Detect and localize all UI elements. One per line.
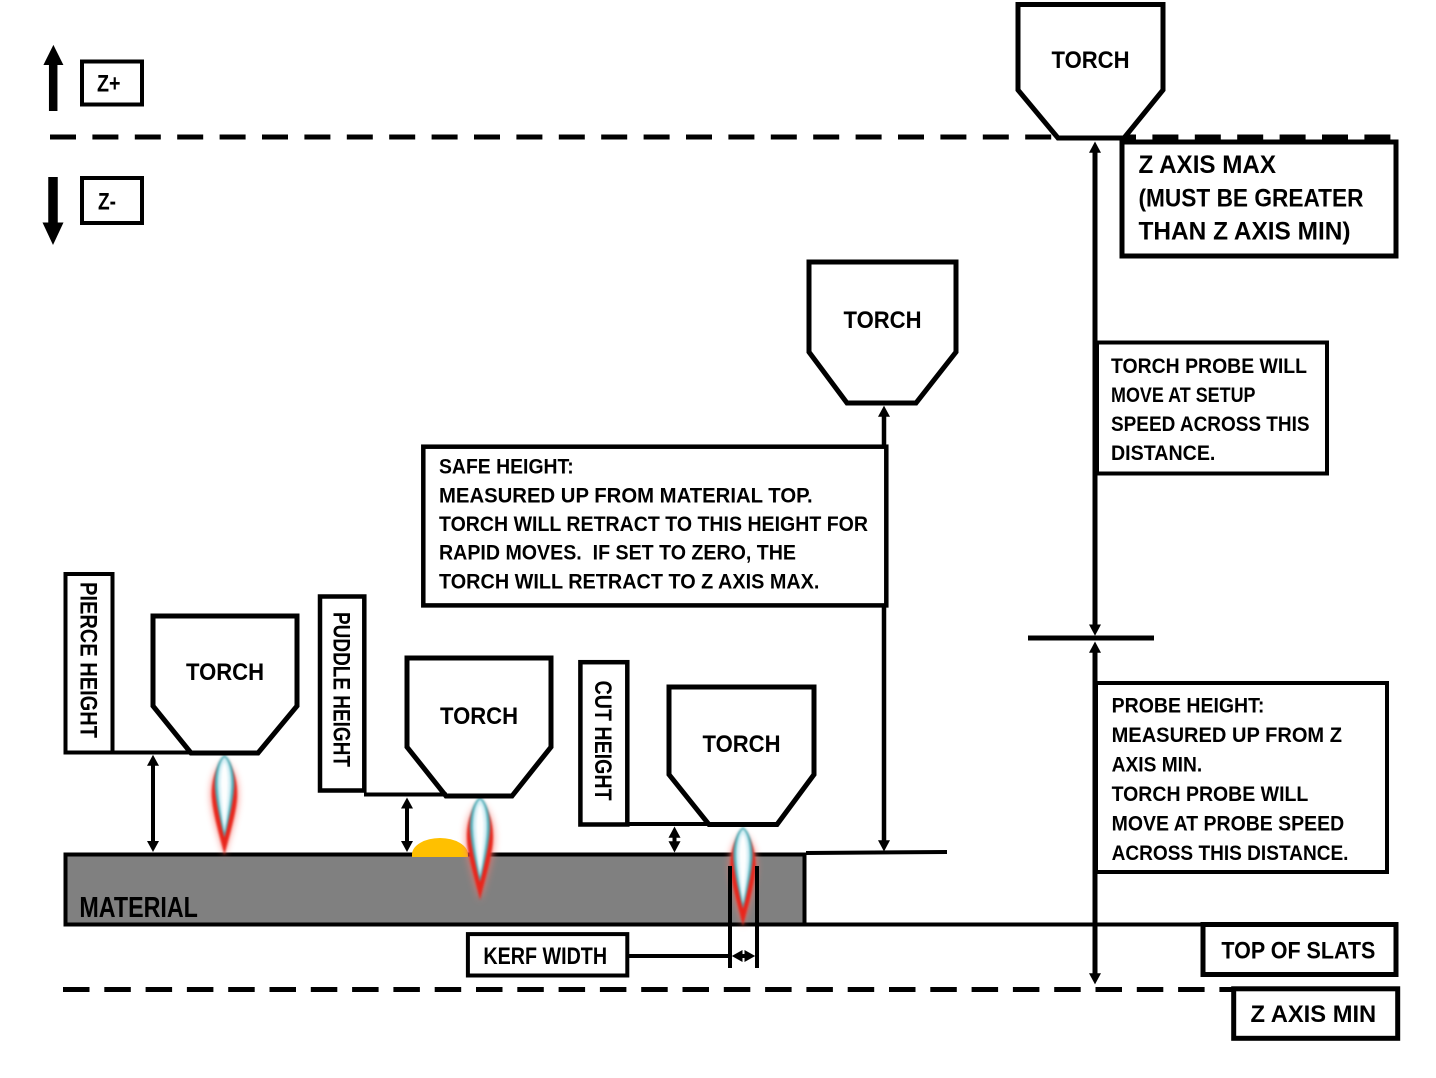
- svg-text:RAPID MOVES. IF SET TO ZERO,: RAPID MOVES. IF SET TO ZERO, THE: [439, 541, 796, 565]
- svg-text:TORCH: TORCH: [844, 307, 922, 334]
- svg-text:Z AXIS MIN: Z AXIS MIN: [1251, 1001, 1377, 1028]
- svg-text:SAFE HEIGHT:: SAFE HEIGHT:: [439, 455, 574, 479]
- svg-text:TORCH PROBE WILL: TORCH PROBE WILL: [1111, 354, 1307, 378]
- svg-text:CUT HEIGHT: CUT HEIGHT: [589, 681, 616, 801]
- svg-text:THAN Z AXIS MIN): THAN Z AXIS MIN): [1139, 218, 1351, 246]
- svg-text:MATERIAL: MATERIAL: [79, 892, 197, 924]
- svg-text:Z+: Z+: [97, 71, 121, 98]
- svg-text:TORCH: TORCH: [186, 659, 264, 686]
- svg-text:TORCH WILL RETRACT TO THIS HEI: TORCH WILL RETRACT TO THIS HEIGHT FOR: [439, 512, 868, 536]
- svg-text:PIERCE HEIGHT: PIERCE HEIGHT: [74, 582, 101, 738]
- svg-text:TORCH WILL RETRACT TO Z AXIS M: TORCH WILL RETRACT TO Z AXIS MAX.: [439, 570, 819, 594]
- svg-text:TORCH: TORCH: [703, 731, 781, 758]
- svg-text:TORCH: TORCH: [440, 703, 518, 730]
- svg-text:MOVE AT SETUP: MOVE AT SETUP: [1111, 383, 1256, 407]
- svg-text:AXIS MIN.: AXIS MIN.: [1112, 753, 1203, 777]
- svg-text:MOVE AT PROBE SPEED: MOVE AT PROBE SPEED: [1112, 812, 1345, 836]
- svg-text:PUDDLE HEIGHT: PUDDLE HEIGHT: [328, 612, 355, 767]
- svg-text:TORCH PROBE WILL: TORCH PROBE WILL: [1112, 782, 1309, 806]
- svg-text:PROBE HEIGHT:: PROBE HEIGHT:: [1112, 694, 1265, 718]
- svg-text:Z AXIS MAX: Z AXIS MAX: [1139, 151, 1277, 179]
- svg-text:Z-: Z-: [98, 189, 116, 216]
- svg-text:DISTANCE.: DISTANCE.: [1111, 441, 1215, 465]
- svg-text:MEASURED UP FROM MATERIAL TOP.: MEASURED UP FROM MATERIAL TOP.: [439, 483, 813, 507]
- svg-text:KERF WIDTH: KERF WIDTH: [483, 944, 607, 970]
- svg-text:MEASURED UP FROM Z: MEASURED UP FROM Z: [1112, 723, 1342, 747]
- svg-text:SPEED ACROSS THIS: SPEED ACROSS THIS: [1111, 412, 1310, 436]
- svg-text:(MUST BE GREATER: (MUST BE GREATER: [1139, 184, 1364, 212]
- svg-text:ACROSS THIS DISTANCE.: ACROSS THIS DISTANCE.: [1112, 841, 1349, 865]
- svg-text:TORCH: TORCH: [1052, 47, 1130, 74]
- svg-text:TOP OF SLATS: TOP OF SLATS: [1221, 938, 1375, 965]
